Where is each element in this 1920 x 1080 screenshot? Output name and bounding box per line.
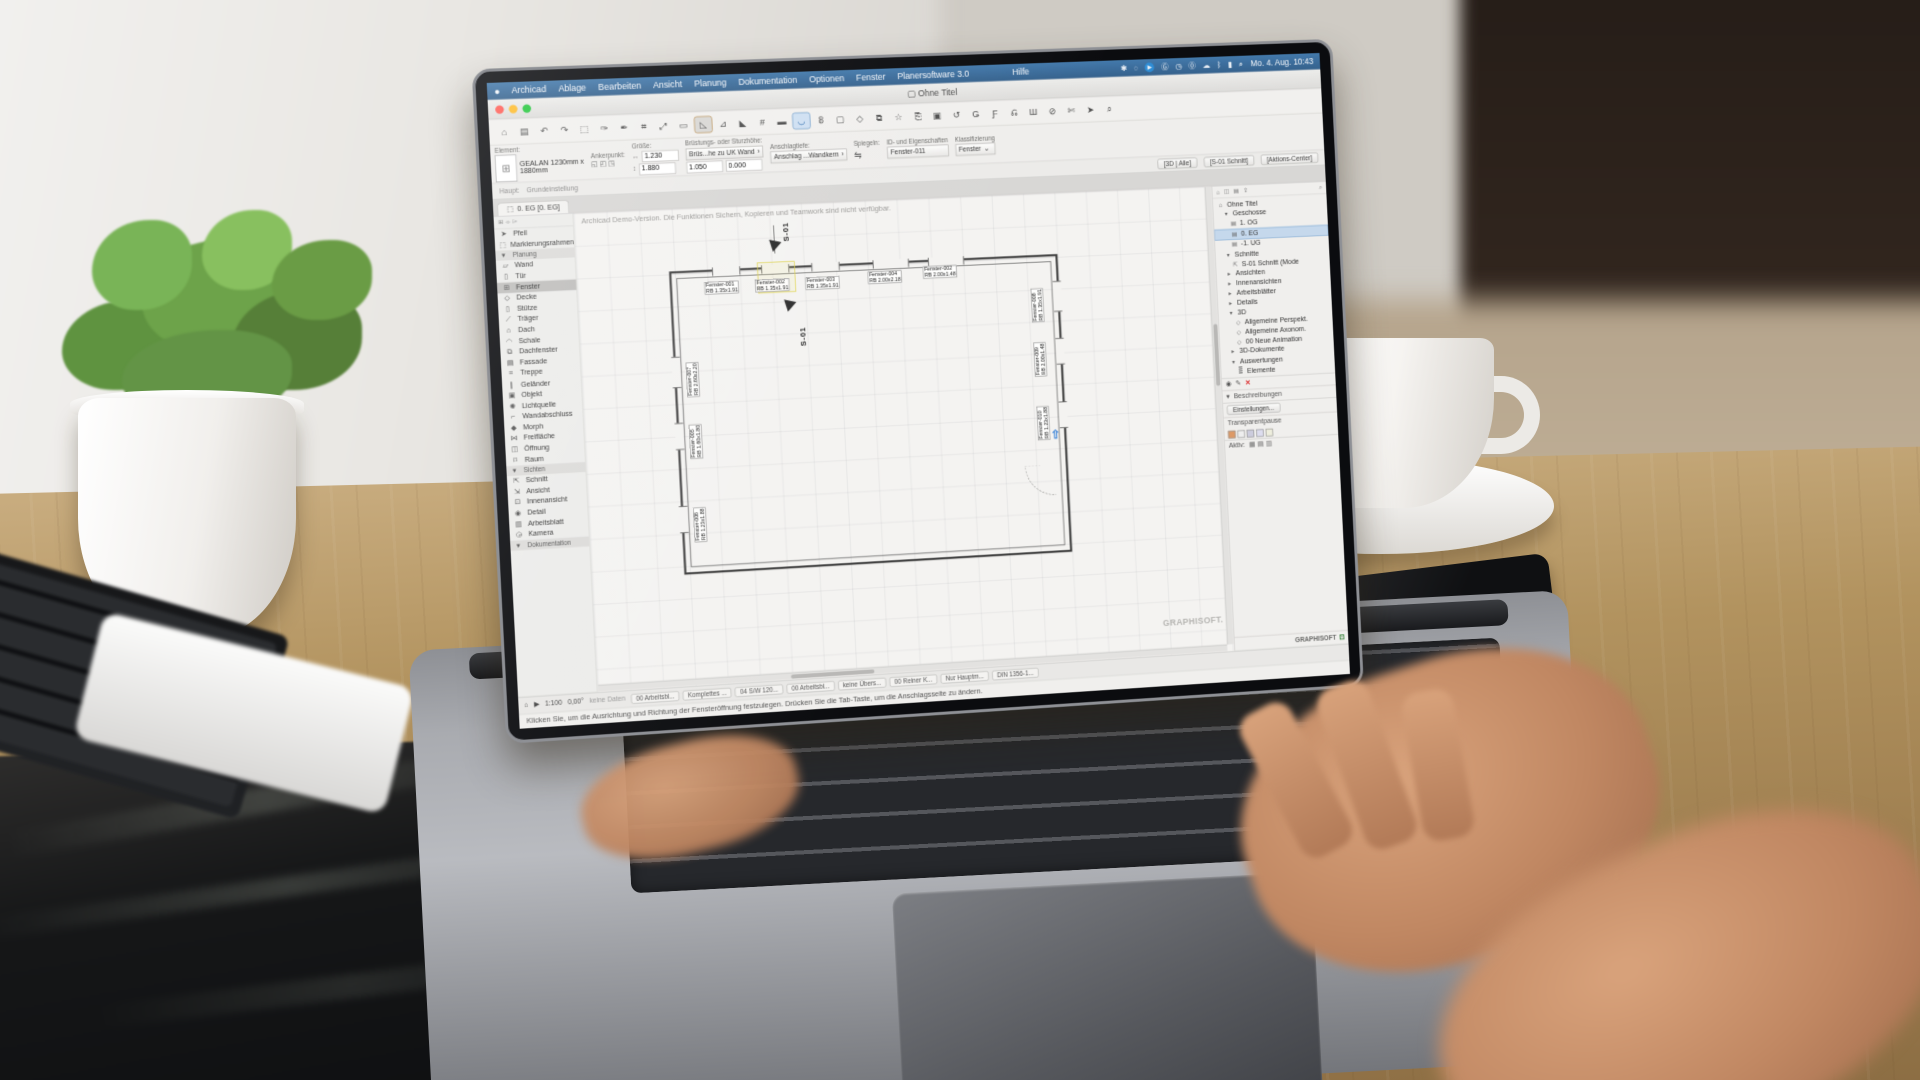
- tool-pfeil-icon: ➤: [499, 230, 509, 238]
- window-label[interactable]: Fenster-002RB 1.35x1.91: [755, 278, 790, 292]
- nav-geschosse-icon: ▾: [1222, 210, 1230, 218]
- tool-tuer-label: Tür: [515, 272, 526, 280]
- quicktab-arbeitsblatt-1[interactable]: 00 Arbeitsbl...: [631, 691, 680, 704]
- placement-direction-arrow: ⇧: [1050, 428, 1060, 442]
- group-icon[interactable]: ⧉: [870, 109, 889, 126]
- groesse-block: Größe: ↔ ↕: [631, 140, 679, 176]
- nav-1-og-icon: ▤: [1230, 220, 1238, 228]
- search-icon[interactable]: ⌕: [1319, 184, 1323, 192]
- anschlag-select[interactable]: Anschlag ...Wandkern›: [770, 149, 847, 164]
- tool-objekt-label: Objekt: [521, 390, 542, 399]
- tool-ansicht-label: Ansicht: [526, 486, 550, 495]
- section-marker-label: S-01: [781, 222, 790, 241]
- nav-3d-icon: ▾: [1227, 309, 1235, 317]
- menu-archicad[interactable]: Archicad: [511, 84, 546, 95]
- uk-icon[interactable]: Ш: [1024, 103, 1043, 120]
- nav-minus-1-ug-icon: ▤: [1231, 241, 1239, 249]
- menu-dokumentation[interactable]: Dokumentation: [738, 75, 797, 87]
- wifi-icon[interactable]: ◌: [1134, 64, 1139, 72]
- grundeinstellung-label: Grundeinstellung: [526, 184, 578, 194]
- spiegeln-block: Spiegeln: ⇋: [853, 132, 881, 167]
- keystroke-icon[interactable]: ✱: [1121, 64, 1128, 73]
- ankerpunkt-label: Ankerpunkt:: [591, 151, 625, 159]
- tool-wand-icon: ▱: [500, 262, 510, 270]
- tool-dach-label: Dach: [518, 326, 535, 335]
- tool-treppe-label: Treppe: [520, 369, 543, 378]
- frame-icon[interactable]: ▢: [831, 110, 850, 127]
- publisher-icon[interactable]: ⇪: [1243, 187, 1248, 195]
- favorites-star-icon[interactable]: ☆: [889, 108, 908, 125]
- nav-ansichten-icon: ▸: [1225, 270, 1233, 278]
- window-opening[interactable]: [675, 423, 685, 450]
- window-opening[interactable]: [1059, 401, 1068, 428]
- chevron-down-icon: ⌄: [983, 145, 989, 153]
- section-marker-triangle[interactable]: [782, 299, 797, 312]
- chevron-down-icon[interactable]: ▾: [1226, 393, 1230, 401]
- anschlag-block: Anschlagtiefe: Anschlag ...Wandkern›: [770, 133, 848, 170]
- delete-icon[interactable]: ✕: [1245, 380, 1251, 388]
- window-label[interactable]: Fenster-010RB 1.23x1.88: [1036, 406, 1050, 441]
- id-block: ID- und Eigenschaften Fenster-011: [886, 129, 949, 166]
- capture-icon[interactable]: ⌗: [634, 118, 653, 136]
- menu-ablage[interactable]: Ablage: [558, 83, 586, 94]
- tool-wandabschluss-icon: ⌐: [508, 413, 518, 421]
- mirror-icon[interactable]: ⇋: [854, 148, 881, 160]
- quicktab-din-1356[interactable]: DIN 1356-1...: [992, 667, 1039, 680]
- window-opening[interactable]: [811, 262, 839, 272]
- view-map-icon[interactable]: ◫: [1224, 188, 1230, 196]
- window-opening[interactable]: [679, 506, 689, 533]
- save-icon[interactable]: ▤: [515, 122, 534, 140]
- tool-fassade-icon: ▤: [505, 359, 515, 367]
- wall-reference-icon[interactable]: ▬: [772, 112, 791, 130]
- nav-1-og-label: 1. OG: [1240, 219, 1258, 227]
- tool-decke-label: Decke: [516, 293, 537, 302]
- chevron-right-icon: ›: [841, 151, 844, 159]
- nav-details-label: Details: [1237, 298, 1258, 307]
- window-preview-icon[interactable]: ⊞: [495, 154, 518, 182]
- ankerpunkt-block: Ankerpunkt: ◱◰◳: [590, 142, 626, 178]
- triangle-ruler-icon[interactable]: ◺: [694, 115, 713, 133]
- window-opening[interactable]: [873, 259, 909, 269]
- nav-0-eg-label: 0. EG: [1241, 229, 1258, 237]
- marquee-icon[interactable]: ⬚: [575, 120, 594, 138]
- tool-fenster-icon: ⊞: [501, 284, 511, 292]
- nav-schnitte-label: Schnitte: [1235, 249, 1260, 258]
- clock-badge-icon[interactable]: ◷: [1175, 62, 1182, 71]
- eye-icon[interactable]: ◉: [1226, 381, 1232, 389]
- tool-gelaender-label: Geländer: [521, 379, 551, 388]
- tool-schnitt-label: Schnitt: [526, 476, 548, 485]
- tool-arbeitsblatt-label: Arbeitsblatt: [528, 518, 564, 528]
- home-icon[interactable]: ⌂: [524, 701, 529, 709]
- tool-treppe-icon: ≡: [506, 370, 516, 378]
- schnitt-icon[interactable]: Ƒ: [986, 104, 1005, 121]
- window-opening[interactable]: [671, 357, 681, 388]
- element-name[interactable]: GEALAN 1230mm x1880mm: [519, 157, 584, 175]
- tool-freiflaeche-label: Freifläche: [523, 433, 555, 442]
- tool-dachfenster-label: Dachfenster: [519, 346, 558, 356]
- brand-logo-icon: ⊡: [1339, 634, 1345, 642]
- ruler-icon[interactable]: ▭: [674, 116, 693, 134]
- tool-dach-icon: ⌂: [504, 327, 514, 335]
- building-outline: Fenster-001RB 1.35x1.91 Fenster-002RB 1.…: [669, 254, 1072, 575]
- desk-photo-scene: ● ArchicadAblageBearbeitenAnsichtPlanung…: [0, 0, 1920, 1080]
- quicktab-keine-uebers[interactable]: keine Übers...: [838, 677, 887, 690]
- close-window-button[interactable]: [495, 105, 504, 114]
- rotate-icon[interactable]: ↺: [947, 106, 966, 123]
- tool-kamera-icon: ◶: [514, 531, 524, 539]
- window-label[interactable]: Fenster-007RB 2.60x2.20: [686, 362, 700, 397]
- diamond-icon[interactable]: ◇: [850, 110, 869, 127]
- nav-elemente-icon: ≣: [1237, 367, 1245, 375]
- group-dokumentation-icon: ▾: [513, 541, 523, 549]
- tool-innenansicht-icon: ⊡: [512, 499, 522, 507]
- klassifizierung-block: Klassifizierung Fenster⌄: [954, 127, 996, 163]
- menu-planersoftware[interactable]: Planersoftware 3.0: [897, 69, 969, 81]
- window-opening[interactable]: [712, 266, 741, 276]
- menu-bar-status-icons: ✱◌▶Ⓖ◷⓪☁ᛒ▮⌕: [1120, 59, 1242, 74]
- menu-fenster[interactable]: Fenster: [856, 72, 886, 83]
- quicktab-reiner-k[interactable]: 00 Reiner K...: [889, 674, 937, 687]
- archicad-application-window: ● ArchicadAblageBearbeitenAnsichtPlanung…: [487, 53, 1350, 729]
- nav-3d-dokumente-icon: ▸: [1229, 348, 1237, 356]
- nav-arbeitsblaetter-icon: ▸: [1226, 290, 1234, 298]
- scale-value[interactable]: 1:100: [545, 699, 562, 708]
- color-chip[interactable]: [1228, 431, 1236, 439]
- width-icon: ↔: [632, 153, 639, 161]
- element-id-field[interactable]: Fenster-011: [887, 145, 949, 159]
- group-sichten-label: Sichten: [524, 466, 546, 474]
- menu-bar-clock[interactable]: Mo. 4. Aug. 10:43: [1250, 57, 1313, 69]
- window-label[interactable]: Fenster-004RB 2.00x2.18: [868, 270, 903, 284]
- zoom-window-button[interactable]: [522, 104, 531, 113]
- nav-3d-label: 3D: [1237, 309, 1246, 317]
- tool-lichtquelle-icon: ✺: [507, 402, 517, 410]
- color-chip[interactable]: [1265, 429, 1273, 437]
- transparentpause-label: Transparentpause: [1227, 417, 1281, 427]
- nav-details-icon: ▸: [1227, 299, 1235, 307]
- tool-schale-label: Schale: [518, 336, 540, 345]
- tool-decke-icon: ◇: [502, 294, 512, 302]
- scissors-icon[interactable]: ✄: [1062, 101, 1081, 118]
- nav-0-eg-icon: ▤: [1231, 230, 1239, 238]
- tool-stuetze-icon: ▯: [502, 305, 512, 313]
- einstellungen-button[interactable]: Einstellungen...: [1227, 403, 1281, 415]
- tool-arbeitsblatt-icon: ▥: [513, 520, 523, 528]
- play-badge-icon[interactable]: ▶: [1145, 62, 1155, 72]
- tool-wand-label: Wand: [515, 261, 534, 270]
- window-label[interactable]: Fenster-006RB 1.23x1.88: [693, 507, 707, 543]
- tool-traeger-label: Träger: [517, 315, 538, 324]
- window-label[interactable]: Fenster-009RB 2.00x1.48: [1033, 342, 1047, 377]
- spiegeln-label: Spiegeln:: [853, 139, 879, 147]
- tool-raum-icon: ⌑: [510, 456, 520, 464]
- navigator-tree: ⌂Ohne Titel▾Geschosse▤1. OG▤0. EG▤-1. UG…: [1212, 194, 1335, 379]
- stamp-icon[interactable]: ⎘: [909, 107, 928, 124]
- nav-minus-1-ug-label: -1. UG: [1241, 240, 1261, 248]
- quicktab-arbeitsblatt-2[interactable]: 00 Arbeitsbl...: [786, 681, 834, 694]
- layout-book-icon[interactable]: ▤: [1233, 187, 1239, 195]
- haupt-label: Haupt:: [499, 186, 519, 195]
- color-chip[interactable]: [1256, 429, 1264, 437]
- element-block: Element: ⊞ GEALAN 1230mm x1880mm: [494, 143, 584, 181]
- no-data-label: keine Daten: [589, 695, 625, 705]
- tool-lichtquelle-label: Lichtquelle: [522, 400, 557, 410]
- nav-allgemeine-axonometrie-icon: ◇: [1235, 328, 1243, 336]
- color-chip[interactable]: [1237, 430, 1245, 438]
- height-icon: ↕: [633, 165, 637, 173]
- tool-markierungsrahmen-icon: ⬚: [499, 241, 506, 249]
- laptop-trackpad[interactable]: [892, 872, 1323, 1080]
- tool-schnitt-icon: ⇱: [511, 477, 521, 485]
- klassifizierung-label: Klassifizierung: [955, 134, 995, 143]
- section-marker-label: S-01: [799, 327, 808, 347]
- redo-icon[interactable]: ↷: [555, 121, 574, 139]
- tool-kamera-label: Kamera: [528, 529, 553, 538]
- play-icon[interactable]: ▶: [534, 701, 540, 709]
- nav-allgemeine-perspektive-icon: ◇: [1235, 319, 1243, 327]
- section-marker-triangle[interactable]: [767, 240, 782, 254]
- groesse-label: Größe:: [631, 141, 678, 150]
- tool-objekt-icon: ▣: [507, 391, 517, 399]
- cursor-icon[interactable]: ➤: [1081, 101, 1099, 118]
- tool-pfeil-label: Pfeil: [513, 230, 527, 238]
- nav-geschosse-label: Geschosse: [1233, 209, 1267, 218]
- tool-ansicht-icon: ⇲: [512, 488, 522, 496]
- color-chip[interactable]: [1247, 430, 1255, 438]
- picture-icon[interactable]: ▣: [928, 107, 947, 124]
- window-label[interactable]: Fenster-005RB 1.60x1.80: [689, 424, 703, 460]
- menu-optionen[interactable]: Optionen: [809, 74, 845, 85]
- bluetooth-icon[interactable]: ᛒ: [1216, 61, 1221, 69]
- segment-3d-alle[interactable]: [3D | Alle]: [1158, 157, 1198, 169]
- minimize-window-button[interactable]: [509, 104, 518, 113]
- floor-plan-canvas[interactable]: Archicad Demo-Version. Die Funktionen Si…: [574, 186, 1235, 692]
- window-opening[interactable]: [1053, 281, 1063, 312]
- group-planung-label: Planung: [513, 251, 537, 259]
- segment-aktions-center[interactable]: [Aktions-Center]: [1261, 152, 1319, 165]
- project-map-icon[interactable]: ⌂: [1216, 189, 1220, 196]
- beschreibungen-label: Beschreibungen: [1234, 390, 1283, 400]
- tool-fenster-label: Fenster: [516, 282, 541, 291]
- tool-gelaender-icon: ∥: [506, 381, 516, 389]
- tool-traeger-icon: ⟋: [503, 316, 513, 324]
- tool-detail-icon: ◉: [513, 509, 523, 517]
- tab-icon: ⬚: [507, 205, 514, 213]
- bruestung-field[interactable]: [686, 161, 723, 174]
- level-icon[interactable]: ⊿: [713, 115, 732, 133]
- group-dokumentation-label: Dokumentation: [527, 539, 571, 549]
- laptop-screen: ● ArchicadAblageBearbeitenAnsichtPlanung…: [472, 39, 1364, 744]
- battery-icon[interactable]: ▮: [1228, 60, 1233, 69]
- graphisoft-badge: GRAPHISOFT: [1295, 634, 1337, 644]
- lock-icon[interactable]: 𝟠: [811, 111, 830, 129]
- magnet-icon[interactable]: ◡: [792, 112, 811, 130]
- width-field[interactable]: [641, 149, 678, 162]
- nav-neue-animation-icon: ◇: [1236, 338, 1244, 346]
- tool-freiflaeche-icon: ⋈: [509, 435, 519, 443]
- inner-wall-line: [676, 261, 1065, 567]
- nav-elemente-label: Elemente: [1247, 366, 1276, 375]
- g-badge-icon[interactable]: Ⓖ: [1161, 61, 1169, 72]
- tool-innenansicht-label: Innenansicht: [527, 496, 568, 506]
- tool-schale-icon: ◠: [504, 338, 514, 346]
- tool-fassade-label: Fassade: [519, 358, 547, 367]
- navigator-panel: ⌂ ◫ ▤ ⇪ ⌕ ⌂Ohne Titel▾Geschosse▤1. OG▤0.…: [1211, 182, 1348, 651]
- menu-bearbeiten[interactable]: Bearbeiten: [598, 81, 641, 92]
- nav-s01-schnitt-icon: ⇱: [1232, 260, 1240, 268]
- cloud-icon[interactable]: ☁: [1202, 61, 1210, 70]
- zero-badge-icon[interactable]: ⓪: [1188, 60, 1196, 71]
- menu-ansicht[interactable]: Ansicht: [653, 79, 682, 90]
- angle-value[interactable]: 0,00°: [568, 698, 584, 707]
- quicktab-sw-120[interactable]: 04 S/W 120...: [735, 684, 783, 697]
- pencil-icon[interactable]: ✎: [1235, 380, 1241, 388]
- aktiv-label: Aktiv:: [1229, 442, 1246, 450]
- undo-icon[interactable]: ↶: [535, 121, 554, 139]
- klassifizierung-select[interactable]: Fenster⌄: [955, 143, 995, 156]
- eyedropper-icon[interactable]: ✑: [595, 119, 614, 137]
- anchor-icons[interactable]: ◱◰◳: [591, 160, 617, 169]
- height-field[interactable]: [639, 162, 676, 175]
- window-label[interactable]: Fenster-001RB 1.35x1.91: [704, 280, 739, 294]
- home-icon[interactable]: ⌂: [495, 123, 515, 141]
- tool-dachfenster-icon: ⧉: [505, 348, 515, 356]
- quicktab-komplettes[interactable]: Komplettes ...: [683, 687, 732, 700]
- menu-hilfe[interactable]: Hilfe: [1012, 67, 1030, 77]
- window-label[interactable]: Fenster-002RB 2.00x1.48: [923, 265, 958, 279]
- nav-schnitte-icon: ▾: [1224, 251, 1232, 259]
- tool-stuetze-label: Stütze: [517, 304, 538, 313]
- tool-oeffnung-icon: ◫: [510, 445, 520, 453]
- menu-planung[interactable]: Planung: [694, 78, 727, 89]
- window-opening[interactable]: [1055, 338, 1064, 365]
- pen-circle-icon[interactable]: ⊘: [1043, 102, 1062, 119]
- nav-ohne-titel-icon: ⌂: [1217, 201, 1225, 208]
- tool-detail-label: Detail: [527, 508, 546, 517]
- document-icon: ▢: [907, 89, 916, 99]
- nav-ansichten-label: Ansichten: [1235, 269, 1265, 278]
- trowel-icon[interactable]: ◣: [733, 114, 752, 132]
- tool-oeffnung-label: Öffnung: [524, 444, 550, 453]
- window-label[interactable]: Fenster-008RB 1.35x1.91: [1030, 288, 1044, 323]
- fit-icon[interactable]: ⤢: [654, 117, 673, 135]
- group-sichten-icon: ▾: [509, 467, 519, 475]
- sturz-field[interactable]: [725, 159, 762, 172]
- aktiv-icons[interactable]: ▦▤▥: [1249, 440, 1274, 449]
- grid-snap-icon[interactable]: #: [753, 113, 772, 131]
- nav-ohne-titel-label: Ohne Titel: [1227, 199, 1258, 208]
- tool-tuer-icon: ▯: [501, 273, 511, 281]
- bruestung-block: Brüstungs- oder Sturzhöhe: Brüs...he zu …: [685, 136, 765, 174]
- nav-auswertungen-icon: ▾: [1230, 358, 1238, 366]
- syringe-icon[interactable]: ✒: [614, 118, 633, 136]
- window-label[interactable]: Fenster-003RB 1.35x1.91: [805, 276, 840, 290]
- tool-morph-label: Morph: [523, 423, 544, 432]
- nav-innenansichten-icon: ▸: [1226, 280, 1234, 288]
- search-icon[interactable]: ⌕: [1238, 60, 1243, 69]
- chevron-right-icon: ›: [757, 148, 760, 156]
- grundriss-icon[interactable]: Ǥ: [966, 105, 985, 122]
- apple-menu-icon[interactable]: ●: [494, 86, 500, 97]
- segment-s01-schnitt[interactable]: [S-01 Schnitt]: [1204, 155, 1255, 167]
- tool-raum-label: Raum: [524, 455, 543, 464]
- tool-morph-icon: ◆: [508, 424, 518, 432]
- clip-icon[interactable]: ⎌: [1005, 104, 1024, 121]
- tool-list: ➤Pfeil⬚Markierungsrahmen▾Planung▱Wand▯Tü…: [494, 226, 590, 551]
- quicktab-nur-hauptm[interactable]: Nur Hauptm...: [940, 671, 989, 684]
- group-planung-icon: ▾: [498, 252, 508, 260]
- graphisoft-watermark: GRAPHISOFT.: [1163, 614, 1224, 627]
- zoom-icon[interactable]: ⌕: [1100, 100, 1118, 117]
